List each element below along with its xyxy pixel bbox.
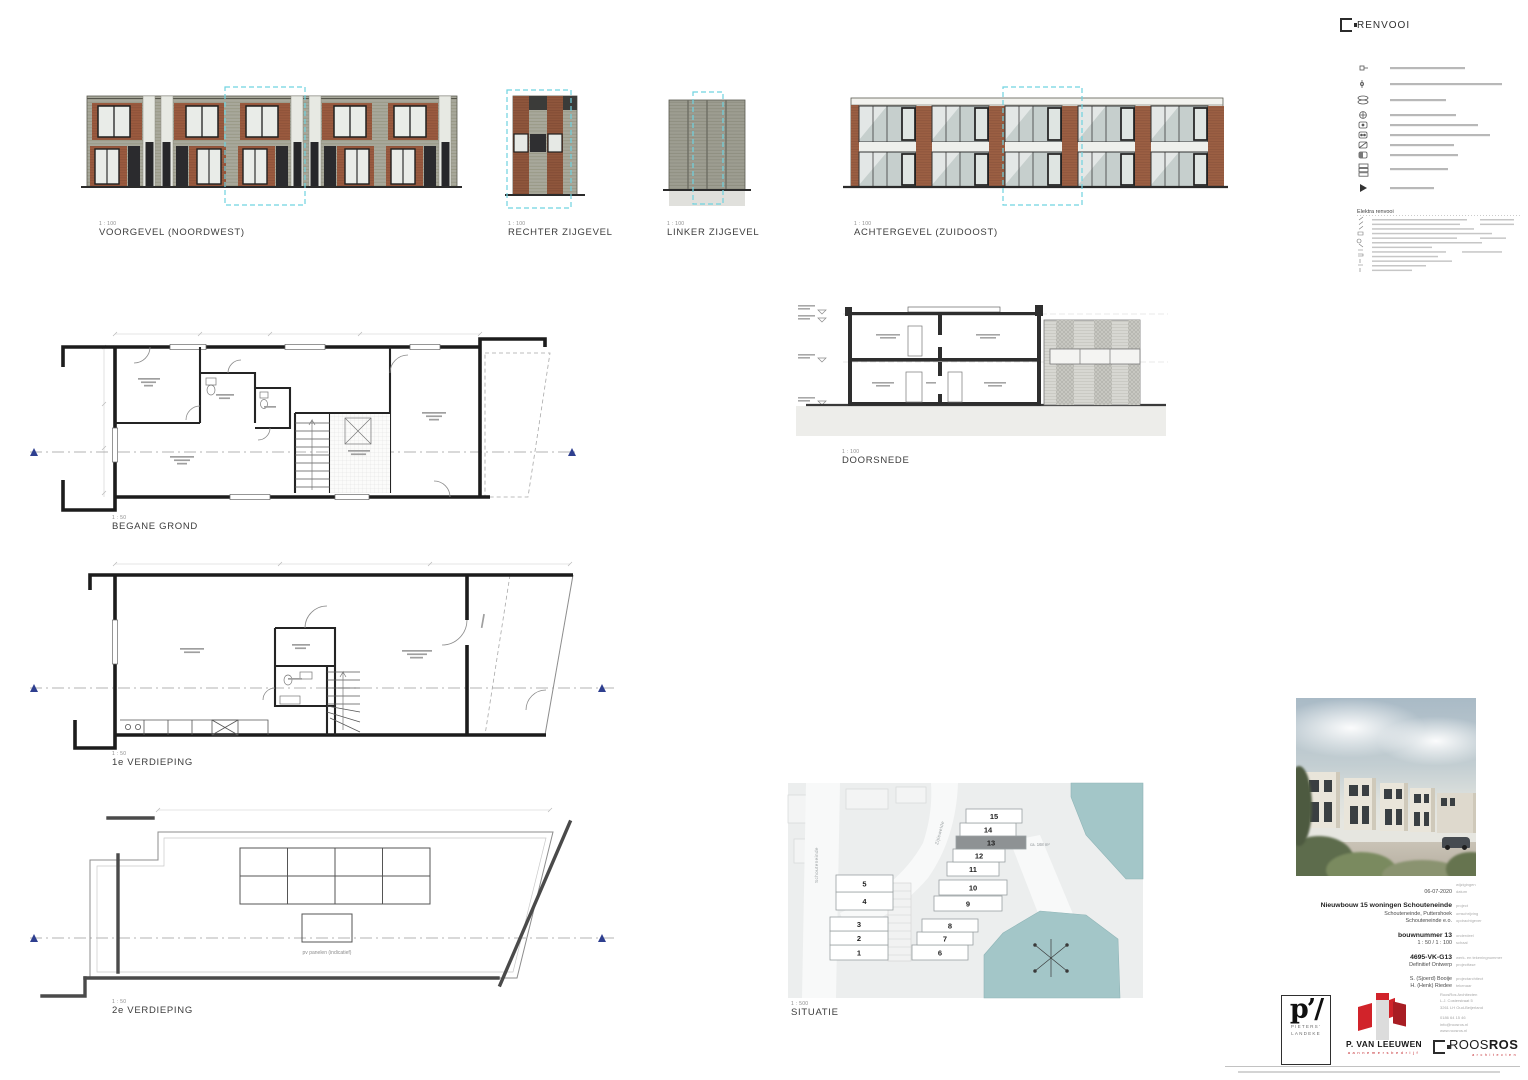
roosros-name-light: ROOS (1449, 1037, 1489, 1052)
section-cut (845, 305, 1043, 406)
site-plot-number: 10 (969, 883, 977, 892)
car (1442, 837, 1470, 848)
van-leeuwen-name: P. VAN LEEUWEN (1337, 1039, 1431, 1049)
linker-zijgevel-drawing (663, 90, 751, 218)
drawing-sheet: pv panelen (indicatief) 1234567891011121… (0, 0, 1528, 1080)
site-plot-number: 5 (862, 879, 866, 888)
project-render-photo (1296, 698, 1476, 876)
site-plot-number: 15 (990, 812, 998, 821)
pv-panel-label: pv panelen (indicatief) (303, 950, 352, 956)
doorsnede-section-drawing (788, 292, 1178, 462)
caption-2e-verdieping: 1 : 50 2e VERDIEPING (112, 1000, 193, 1017)
roosros-address: RoosRos Architecten L.J. Costerstraat 5 … (1440, 992, 1520, 1038)
client-label: opdrachtgever (1452, 918, 1516, 923)
pieters-landeke-logo: p’/ PIETERS’ LANDEKE (1281, 995, 1331, 1065)
house-block (1437, 793, 1476, 833)
caption-doorsnede: 1 : 100 DOORSNEDE (842, 450, 910, 467)
site-plot-number: 2 (857, 934, 861, 943)
caption-1e-verdieping: 1 : 50 1e VERDIEPING (112, 752, 193, 769)
site-plot-number: 1 (857, 948, 861, 957)
part-label: onderdeel (1452, 933, 1516, 938)
elektra-renvooi-legend: Elektra renvooi (1352, 206, 1524, 278)
caption-rechter: 1 : 100 RECHTER ZIJGEVEL (508, 222, 613, 239)
footer-fineprint (1238, 1071, 1500, 1073)
roosros-bracket-icon (1433, 1040, 1445, 1054)
phase-label: projectfase (1452, 962, 1516, 967)
caption-situatie: 1 : 500 SITUATIE (791, 1002, 839, 1019)
site-plot-number: 9 (966, 899, 970, 908)
house-block (1344, 778, 1376, 830)
pieters-logo-mark: p’/ (1282, 996, 1330, 1024)
drawing-date: 06-07-2020 (1276, 889, 1452, 895)
caption-voorgevel: 1 : 100 VOORGEVEL (NOORDWEST) (99, 222, 245, 239)
roosros-address-line: 3261 LH Oud-Beijerland (1440, 1005, 1520, 1011)
roosros-name-bold: ROS (1489, 1037, 1518, 1052)
roosros-logo: ROOSROS architecten (1433, 1037, 1518, 1058)
street-label-left: Schouteneinde (814, 847, 819, 883)
project-label: project (1452, 903, 1516, 908)
project-phase: Definitief Ontwerp (1276, 962, 1452, 968)
drawing-number-label: werk- en tekeningnummer (1452, 955, 1516, 960)
rechter-zijgevel-drawing (505, 90, 585, 215)
title-block: wijzigingen 06-07-2020datum Nieuwbouw 15… (1276, 882, 1516, 991)
label-situatie: SITUATIE (791, 1008, 839, 1019)
site-plot-number: 11 (969, 865, 977, 874)
achtergevel-elevation-drawing (848, 90, 1228, 215)
house-block (1410, 788, 1435, 832)
footer-divider (1225, 1066, 1520, 1067)
bracket-icon (1340, 18, 1352, 32)
project-location: Schouteneinde, Puttershoek (1276, 911, 1452, 917)
site-plot-number: 8 (948, 921, 952, 930)
legend-text-bars (1390, 67, 1502, 189)
site-plot-number: 3 (857, 920, 861, 929)
site-plot-number: 13 (987, 838, 995, 847)
house-block (1380, 783, 1408, 831)
project-title: Nieuwbouw 15 woningen Schouteneinde (1276, 902, 1452, 909)
label-2e-verdieping: 2e VERDIEPING (112, 1006, 193, 1017)
label-rechter: RECHTER ZIJGEVEL (508, 228, 613, 239)
site-plot-number: 6 (938, 948, 942, 957)
caption-linker: 1 : 100 LINKER ZIJGEVEL (667, 222, 759, 239)
roosros-subtitle: architecten (1449, 1054, 1518, 1058)
achtergevel-units (859, 106, 1224, 187)
tweede-verdieping-plan-drawing: pv panelen (indicatief) (30, 800, 620, 1012)
label-voorgevel: VOORGEVEL (NOORDWEST) (99, 228, 245, 239)
eerste-verdieping-plan-drawing (30, 560, 620, 760)
pieters-logo-line2: LANDEKE (1282, 1031, 1330, 1037)
site-plot-number: 14 (984, 825, 993, 834)
van-leeuwen-subtitle: aannemersbedrijf (1337, 1050, 1431, 1055)
scale-label: schaal (1452, 940, 1516, 945)
pv-panels (240, 848, 430, 942)
begane-grond-plan-drawing (30, 328, 580, 526)
van-leeuwen-cubes-icon (1356, 993, 1412, 1037)
voorgevel-elevation-drawing (84, 90, 462, 215)
renvooi-legend-symbols (1352, 62, 1524, 196)
revisions-label: wijzigingen (1452, 882, 1516, 887)
caption-achtergevel: 1 : 100 ACHTERGEVEL (ZUIDOOST) (854, 222, 998, 239)
roosros-website: www.roosros.nl (1440, 1028, 1520, 1034)
label-achtergevel: ACHTERGEVEL (ZUIDOOST) (854, 228, 998, 239)
caption-begane-grond: 1 : 50 BEGANE GROND (112, 516, 198, 533)
drawing-scale: 1 : 50 / 1 : 100 (1276, 940, 1452, 946)
elektra-renvooi-title: Elektra renvooi (1357, 209, 1394, 215)
situatie-site-plan: 123456789101112131415 ca. 168 m² Schoute… (788, 783, 1143, 998)
drafter-label: tekenaar (1452, 983, 1516, 988)
site-plot-number: 12 (975, 851, 983, 860)
renvooi-title: RENVOOI (1357, 20, 1410, 31)
part-number: bouwnummer 13 (1276, 932, 1452, 939)
elektra-text-bars (1372, 219, 1514, 271)
van-leeuwen-logo: P. VAN LEEUWEN aannemersbedrijf (1337, 993, 1431, 1055)
date-label: datum (1452, 889, 1516, 894)
drawing-number: 4695-VK-G13 (1276, 954, 1452, 961)
section-background-elevation (1044, 320, 1140, 405)
label-linker: LINKER ZIJGEVEL (667, 228, 759, 239)
level-markers (798, 305, 826, 405)
site-plot-number: 7 (943, 934, 947, 943)
project-architect: S. (Sjoerd) Booije (1276, 976, 1452, 982)
drafter-name: H. (Henk) Riedee (1276, 983, 1452, 989)
plot-area-label: ca. 168 m² (1030, 842, 1050, 847)
label-1e-verdieping: 1e VERDIEPING (112, 758, 193, 769)
renvooi-header: RENVOOI (1340, 18, 1410, 32)
location-label: omschrijving (1452, 911, 1516, 916)
architect-label: projectarchitect (1452, 976, 1516, 981)
project-client: Schouteneinde e.o. (1276, 918, 1452, 924)
label-doorsnede: DOORSNEDE (842, 456, 910, 467)
label-begane-grond: BEGANE GROND (112, 522, 198, 533)
cloud (1376, 716, 1476, 766)
